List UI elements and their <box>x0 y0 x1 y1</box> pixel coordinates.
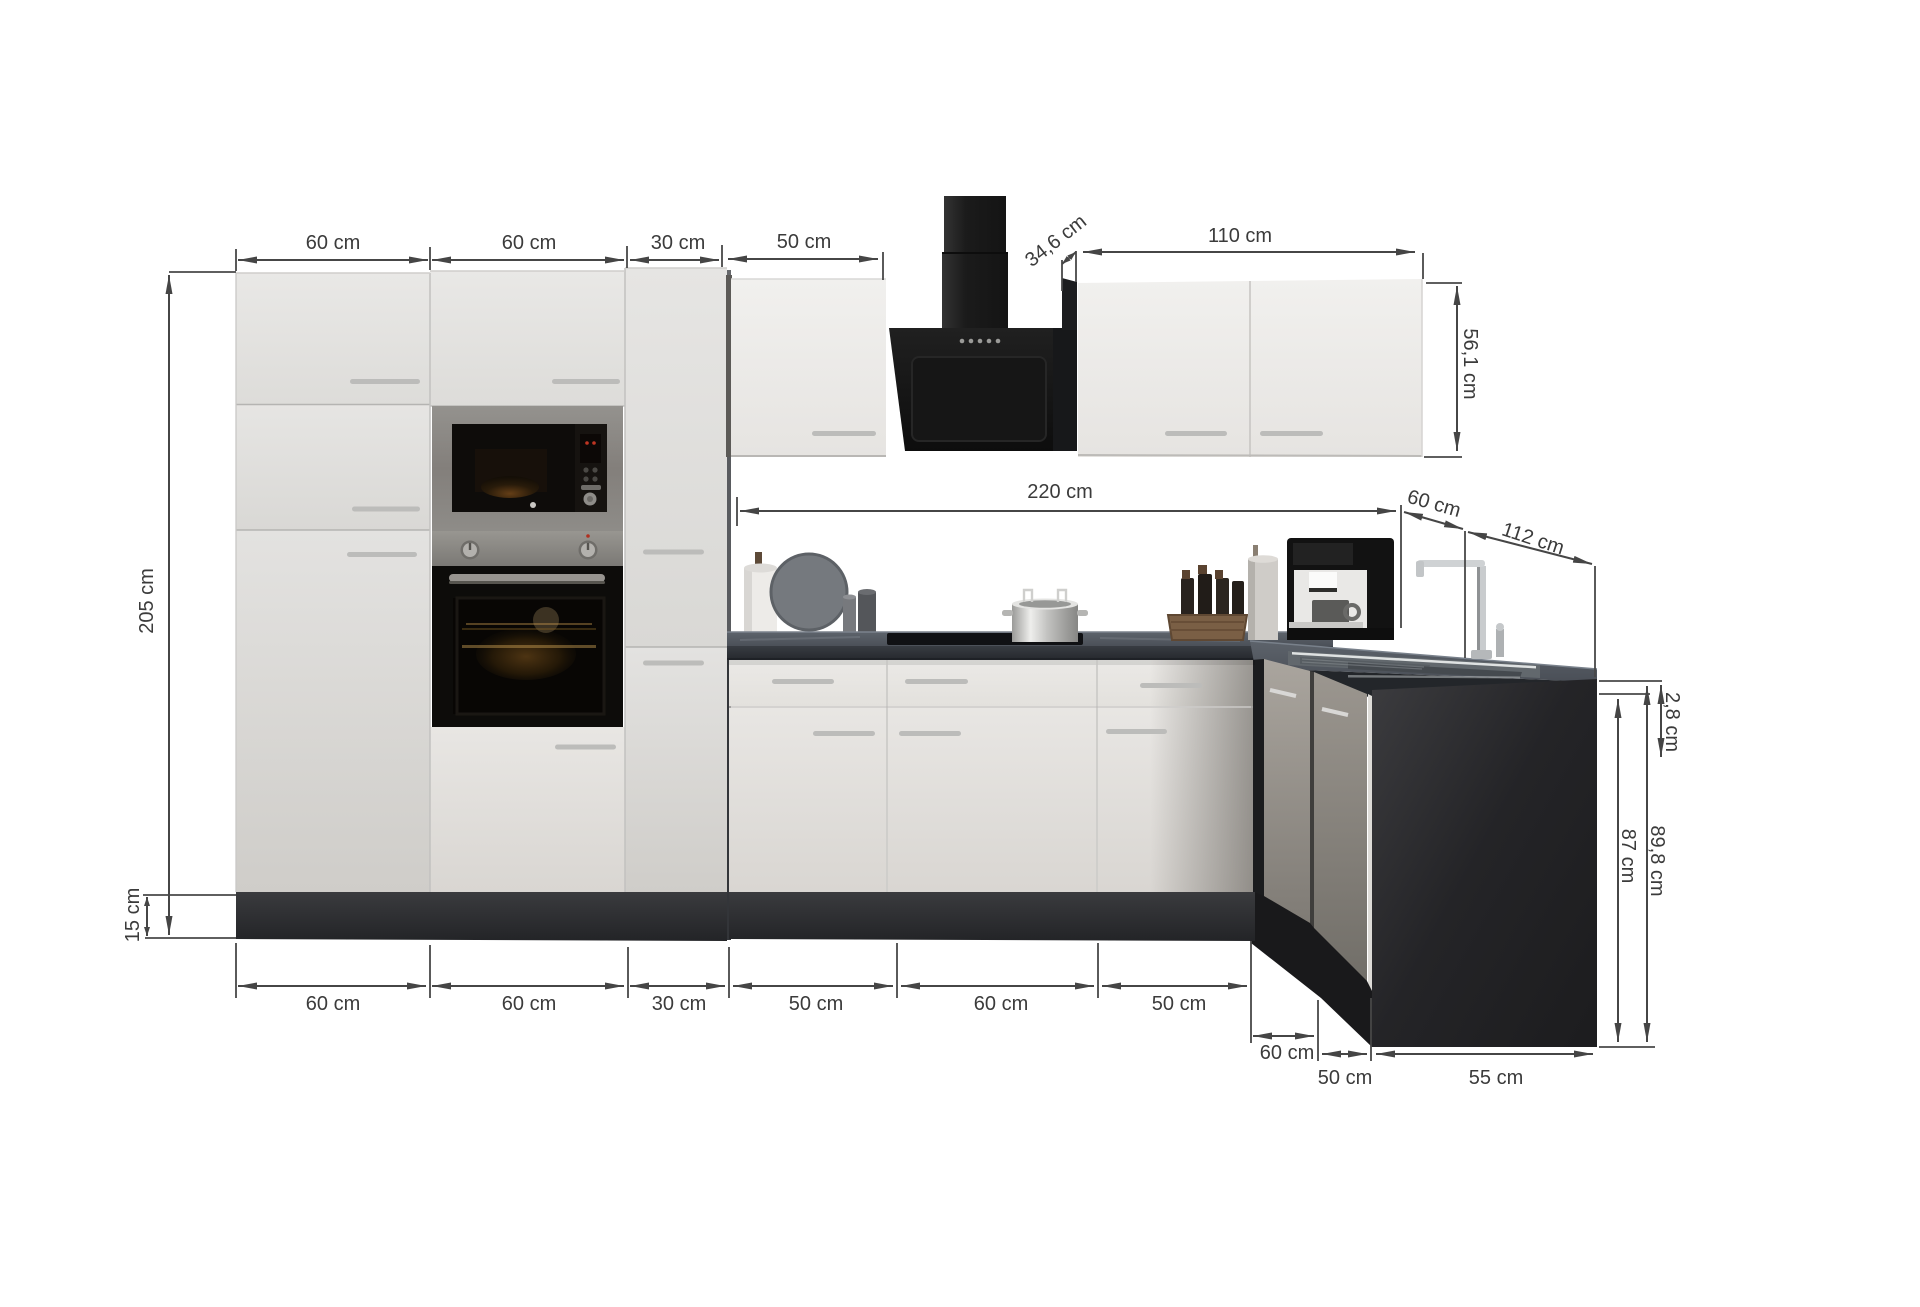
svg-text:30 cm: 30 cm <box>651 232 705 254</box>
svg-text:89,8 cm: 89,8 cm <box>1646 825 1668 896</box>
svg-text:50 cm: 50 cm <box>1318 1067 1372 1089</box>
svg-text:220 cm: 220 cm <box>1027 481 1093 503</box>
svg-text:60 cm: 60 cm <box>1260 1042 1314 1064</box>
svg-text:87 cm: 87 cm <box>1617 829 1639 883</box>
svg-text:110 cm: 110 cm <box>1208 225 1272 247</box>
svg-text:15 cm: 15 cm <box>122 888 144 942</box>
svg-text:60 cm: 60 cm <box>306 993 360 1015</box>
svg-text:60 cm: 60 cm <box>502 993 556 1015</box>
svg-text:56,1 cm: 56,1 cm <box>1459 328 1481 399</box>
svg-text:205 cm: 205 cm <box>136 568 158 634</box>
svg-text:50 cm: 50 cm <box>777 231 831 253</box>
svg-text:60 cm: 60 cm <box>306 232 360 254</box>
svg-text:30 cm: 30 cm <box>652 993 706 1015</box>
svg-text:60 cm: 60 cm <box>502 232 556 254</box>
svg-text:50 cm: 50 cm <box>1152 993 1206 1015</box>
svg-text:2,8 cm: 2,8 cm <box>1661 692 1683 752</box>
svg-text:60 cm: 60 cm <box>974 993 1028 1015</box>
svg-text:50 cm: 50 cm <box>789 993 843 1015</box>
svg-text:55 cm: 55 cm <box>1469 1067 1523 1089</box>
